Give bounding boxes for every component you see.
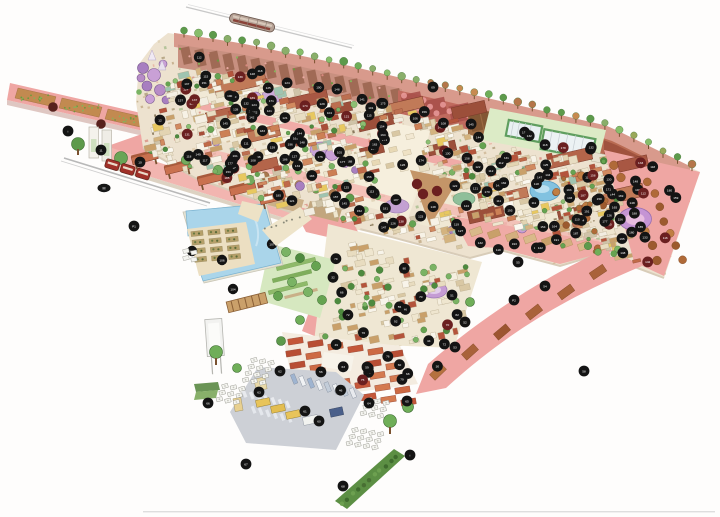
svg-text:49: 49 bbox=[334, 343, 338, 347]
svg-text:11: 11 bbox=[99, 148, 102, 152]
svg-text:137: 137 bbox=[184, 82, 189, 86]
svg-text:12: 12 bbox=[158, 118, 162, 122]
svg-text:62: 62 bbox=[278, 369, 282, 373]
svg-text:133: 133 bbox=[642, 236, 647, 240]
svg-text:46: 46 bbox=[339, 389, 343, 393]
svg-text:183: 183 bbox=[260, 129, 265, 133]
svg-text:154: 154 bbox=[540, 225, 545, 229]
svg-text:112: 112 bbox=[641, 191, 646, 195]
svg-text:157: 157 bbox=[333, 195, 338, 199]
svg-text:126: 126 bbox=[400, 163, 405, 167]
svg-text:142: 142 bbox=[538, 246, 543, 250]
svg-text:161: 161 bbox=[233, 154, 238, 158]
svg-text:131: 131 bbox=[185, 133, 190, 137]
svg-text:191: 191 bbox=[584, 209, 589, 213]
svg-text:110: 110 bbox=[575, 218, 580, 222]
svg-text:185: 185 bbox=[276, 194, 281, 198]
svg-text:32: 32 bbox=[331, 276, 335, 280]
svg-text:183: 183 bbox=[309, 174, 314, 178]
svg-text:176: 176 bbox=[318, 155, 323, 159]
svg-text:111: 111 bbox=[244, 142, 249, 146]
svg-text:139: 139 bbox=[238, 75, 243, 79]
svg-text:169: 169 bbox=[618, 194, 623, 198]
svg-text:111: 111 bbox=[532, 201, 537, 205]
svg-text:148: 148 bbox=[334, 87, 339, 91]
svg-text:108: 108 bbox=[251, 159, 256, 163]
svg-text:10: 10 bbox=[138, 160, 142, 164]
svg-text:51: 51 bbox=[450, 293, 454, 297]
svg-text:193: 193 bbox=[512, 242, 517, 246]
svg-text:133: 133 bbox=[638, 161, 643, 165]
svg-text:165: 165 bbox=[612, 205, 617, 209]
svg-text:159: 159 bbox=[673, 196, 678, 200]
svg-text:70: 70 bbox=[419, 295, 423, 299]
svg-text:191: 191 bbox=[554, 238, 559, 242]
svg-text:52: 52 bbox=[463, 320, 467, 324]
svg-text:156: 156 bbox=[366, 175, 371, 179]
svg-text:117: 117 bbox=[203, 159, 208, 163]
svg-text:190: 190 bbox=[227, 94, 232, 98]
svg-text:187: 187 bbox=[581, 193, 586, 197]
svg-text:175: 175 bbox=[380, 102, 385, 106]
svg-text:128: 128 bbox=[250, 72, 255, 76]
svg-text:148: 148 bbox=[630, 201, 635, 205]
svg-text:68: 68 bbox=[341, 484, 345, 488]
svg-text:112: 112 bbox=[488, 169, 493, 173]
svg-text:163: 163 bbox=[372, 143, 377, 147]
svg-text:115: 115 bbox=[367, 113, 372, 117]
svg-text:54: 54 bbox=[543, 284, 547, 288]
svg-text:187: 187 bbox=[393, 198, 398, 202]
svg-text:121: 121 bbox=[282, 116, 287, 120]
svg-text:118: 118 bbox=[186, 154, 191, 158]
svg-text:187: 187 bbox=[573, 231, 578, 235]
svg-text:158: 158 bbox=[590, 174, 595, 178]
svg-text:130: 130 bbox=[606, 178, 611, 182]
svg-text:66: 66 bbox=[340, 291, 344, 295]
svg-text:106: 106 bbox=[219, 258, 224, 262]
svg-text:104: 104 bbox=[230, 287, 235, 291]
svg-text:72: 72 bbox=[346, 313, 350, 317]
svg-text:63: 63 bbox=[257, 390, 261, 394]
svg-text:112: 112 bbox=[499, 161, 504, 165]
svg-text:72: 72 bbox=[443, 342, 447, 346]
svg-text:104: 104 bbox=[327, 111, 332, 115]
svg-text:144: 144 bbox=[476, 136, 481, 140]
svg-text:145: 145 bbox=[223, 122, 228, 126]
svg-text:180: 180 bbox=[667, 189, 672, 193]
svg-text:145: 145 bbox=[342, 202, 347, 206]
svg-text:112: 112 bbox=[197, 55, 202, 59]
svg-text:177: 177 bbox=[340, 160, 345, 164]
svg-text:65: 65 bbox=[405, 399, 409, 403]
svg-text:181: 181 bbox=[383, 207, 388, 211]
svg-text:188: 188 bbox=[632, 212, 637, 216]
svg-text:162: 162 bbox=[501, 181, 506, 185]
svg-text:118: 118 bbox=[534, 182, 539, 186]
svg-text:132: 132 bbox=[478, 241, 483, 245]
svg-text:101: 101 bbox=[368, 106, 373, 110]
svg-text:106: 106 bbox=[413, 116, 418, 120]
svg-text:79: 79 bbox=[400, 378, 404, 382]
svg-text:44: 44 bbox=[427, 339, 431, 343]
svg-text:118: 118 bbox=[258, 69, 263, 73]
svg-text:144: 144 bbox=[545, 173, 550, 177]
svg-text:130: 130 bbox=[445, 151, 450, 155]
svg-text:122: 122 bbox=[452, 184, 457, 188]
svg-text:121: 121 bbox=[289, 199, 294, 203]
svg-text:103: 103 bbox=[567, 196, 572, 200]
svg-text:147: 147 bbox=[381, 226, 386, 230]
svg-text:124: 124 bbox=[464, 204, 469, 208]
svg-text:148: 148 bbox=[620, 251, 625, 255]
svg-text:149: 149 bbox=[196, 153, 201, 157]
svg-text:56: 56 bbox=[319, 370, 323, 374]
svg-text:115: 115 bbox=[203, 74, 208, 78]
svg-text:60: 60 bbox=[398, 363, 402, 367]
svg-text:137: 137 bbox=[192, 98, 197, 102]
svg-text:92: 92 bbox=[394, 319, 398, 323]
svg-text:138: 138 bbox=[399, 219, 404, 223]
svg-text:164: 164 bbox=[552, 225, 557, 229]
svg-text:174: 174 bbox=[419, 159, 424, 163]
svg-text:127: 127 bbox=[292, 155, 297, 159]
svg-text:30: 30 bbox=[436, 365, 440, 369]
svg-text:121: 121 bbox=[344, 115, 349, 119]
svg-text:156: 156 bbox=[618, 218, 623, 222]
svg-text:156: 156 bbox=[422, 110, 427, 114]
svg-text:148: 148 bbox=[300, 141, 305, 145]
svg-text:53: 53 bbox=[453, 345, 457, 349]
svg-text:121: 121 bbox=[473, 187, 478, 191]
svg-text:125: 125 bbox=[266, 86, 271, 90]
svg-text:158: 158 bbox=[464, 156, 469, 160]
svg-text:113: 113 bbox=[369, 189, 374, 193]
svg-text:P1: P1 bbox=[132, 224, 136, 228]
svg-text:157: 157 bbox=[178, 99, 183, 103]
svg-text:150: 150 bbox=[597, 197, 602, 201]
svg-text:125: 125 bbox=[543, 163, 548, 167]
svg-text:79: 79 bbox=[334, 257, 338, 261]
svg-text:63: 63 bbox=[341, 365, 345, 369]
svg-text:177: 177 bbox=[602, 220, 607, 224]
svg-text:111: 111 bbox=[496, 199, 501, 203]
svg-text:170: 170 bbox=[485, 190, 490, 194]
svg-text:67: 67 bbox=[244, 462, 248, 466]
svg-text:70: 70 bbox=[446, 323, 450, 327]
svg-text:55: 55 bbox=[398, 305, 402, 309]
svg-text:124: 124 bbox=[252, 103, 257, 107]
svg-text:151: 151 bbox=[202, 81, 207, 85]
svg-text:09: 09 bbox=[431, 85, 435, 89]
svg-text:118: 118 bbox=[650, 165, 655, 169]
svg-text:66: 66 bbox=[206, 401, 210, 405]
svg-text:55: 55 bbox=[516, 260, 520, 264]
svg-text:195: 195 bbox=[619, 237, 624, 241]
svg-text:125: 125 bbox=[344, 185, 349, 189]
svg-text:144: 144 bbox=[297, 132, 302, 136]
svg-text:195: 195 bbox=[507, 209, 512, 213]
svg-text:119: 119 bbox=[454, 223, 459, 227]
svg-text:76: 76 bbox=[386, 355, 390, 359]
svg-text:171: 171 bbox=[269, 99, 274, 103]
svg-text:129: 129 bbox=[320, 102, 325, 106]
svg-text:132: 132 bbox=[244, 101, 249, 105]
svg-text:M: M bbox=[103, 187, 106, 191]
svg-text:148: 148 bbox=[431, 205, 436, 209]
svg-text:80: 80 bbox=[403, 267, 407, 271]
svg-text:116: 116 bbox=[663, 236, 668, 240]
svg-text:70: 70 bbox=[362, 331, 366, 335]
svg-text:127: 127 bbox=[458, 229, 463, 233]
svg-text:59: 59 bbox=[365, 365, 369, 369]
svg-text:160: 160 bbox=[629, 230, 634, 234]
svg-text:121: 121 bbox=[267, 109, 272, 113]
svg-text:178: 178 bbox=[561, 146, 566, 150]
svg-text:153: 153 bbox=[226, 170, 231, 174]
svg-text:118: 118 bbox=[543, 143, 548, 147]
svg-text:128: 128 bbox=[233, 108, 238, 112]
svg-text:119: 119 bbox=[496, 248, 501, 252]
svg-text:152: 152 bbox=[357, 209, 362, 213]
svg-text:196: 196 bbox=[288, 143, 293, 147]
svg-text:108: 108 bbox=[441, 121, 446, 125]
svg-text:61: 61 bbox=[303, 409, 307, 413]
svg-text:142: 142 bbox=[645, 260, 650, 264]
svg-text:132: 132 bbox=[527, 134, 532, 138]
svg-text:193: 193 bbox=[566, 188, 571, 192]
svg-text:159: 159 bbox=[270, 146, 275, 150]
svg-text:142: 142 bbox=[249, 116, 254, 120]
svg-text:68: 68 bbox=[406, 372, 410, 376]
svg-text:126: 126 bbox=[391, 222, 396, 226]
svg-text:82: 82 bbox=[455, 313, 459, 317]
svg-text:148: 148 bbox=[633, 179, 638, 183]
svg-text:185: 185 bbox=[638, 225, 643, 229]
svg-text:177: 177 bbox=[228, 162, 233, 166]
svg-text:75: 75 bbox=[361, 378, 365, 382]
svg-text:64: 64 bbox=[367, 401, 371, 405]
svg-text:164: 164 bbox=[380, 133, 385, 137]
svg-text:124: 124 bbox=[285, 81, 290, 85]
svg-text:100: 100 bbox=[316, 86, 321, 90]
svg-text:122: 122 bbox=[475, 165, 480, 169]
svg-text:134: 134 bbox=[295, 164, 300, 168]
svg-text:P2: P2 bbox=[512, 298, 516, 302]
svg-text:171: 171 bbox=[606, 187, 611, 191]
svg-text:123: 123 bbox=[418, 214, 423, 218]
svg-text:174: 174 bbox=[302, 104, 307, 108]
svg-text:132: 132 bbox=[589, 146, 594, 150]
svg-text:154: 154 bbox=[379, 125, 384, 129]
svg-text:141: 141 bbox=[360, 98, 365, 102]
svg-text:145: 145 bbox=[469, 122, 474, 126]
svg-text:186: 186 bbox=[282, 158, 287, 162]
svg-text:60: 60 bbox=[317, 419, 321, 423]
svg-text:105: 105 bbox=[337, 150, 342, 154]
svg-text:58: 58 bbox=[582, 369, 586, 373]
